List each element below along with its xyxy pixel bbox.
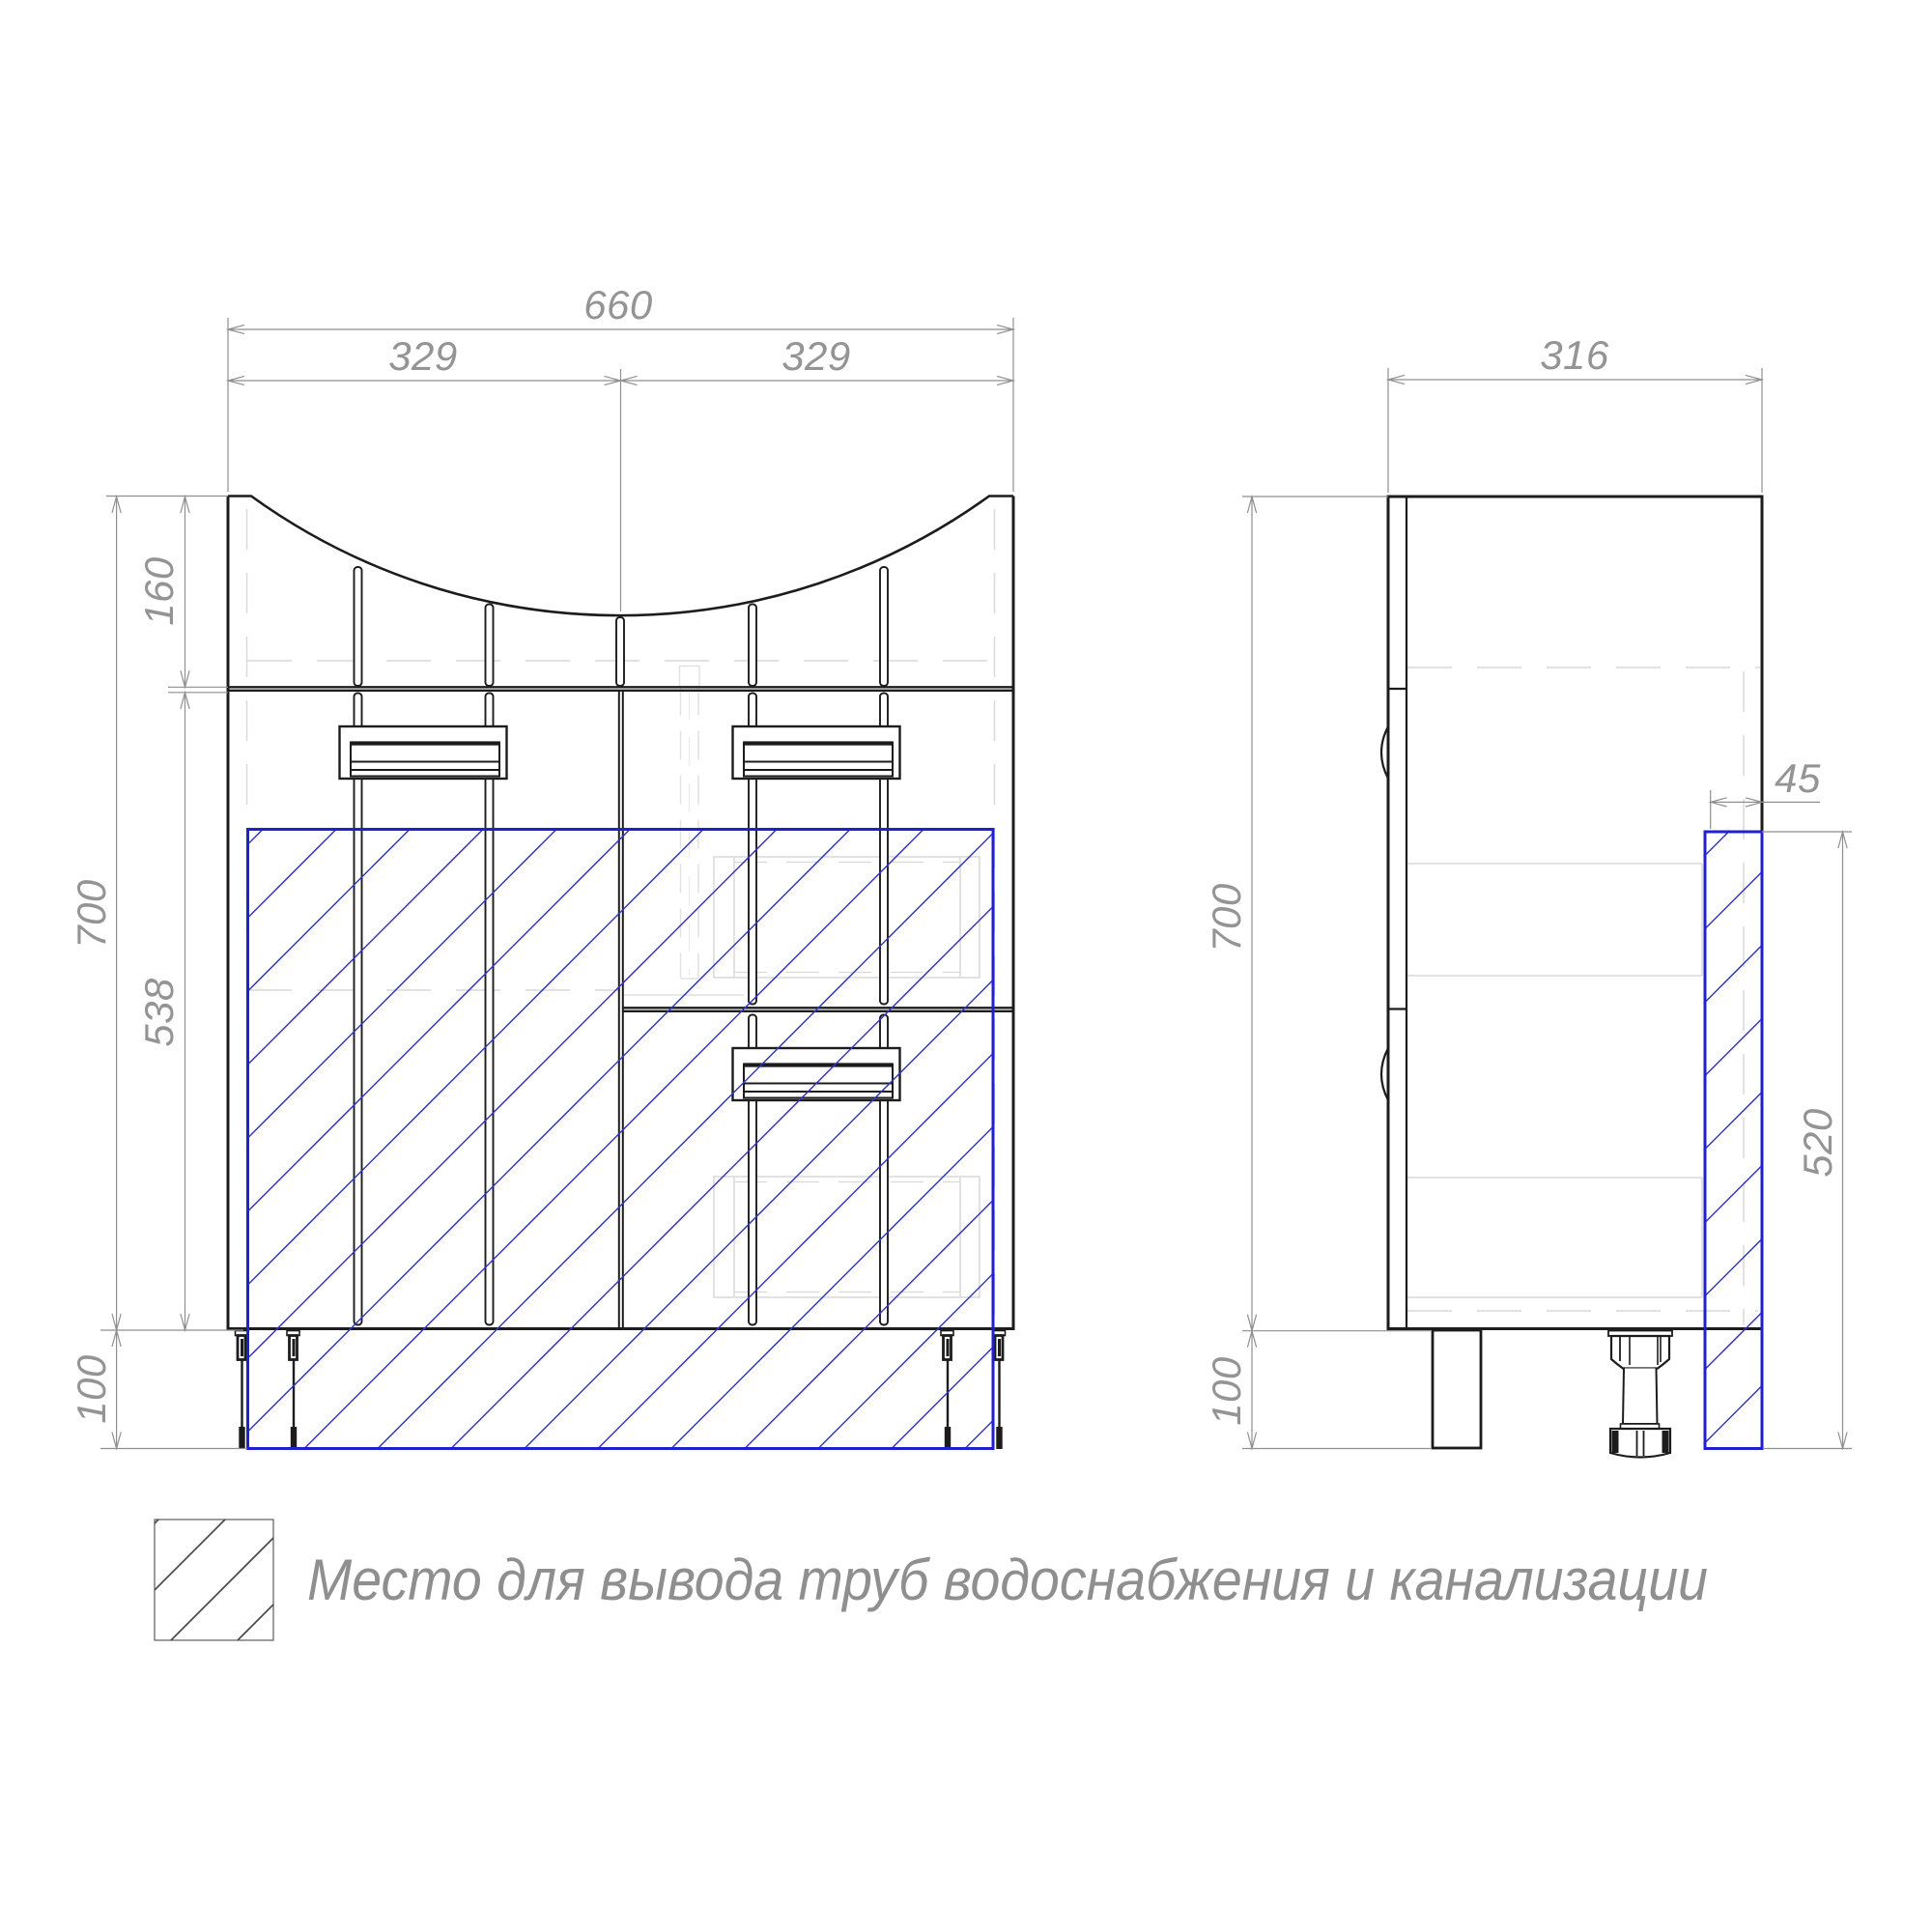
svg-text:329: 329: [388, 333, 458, 379]
svg-text:100: 100: [69, 1354, 114, 1424]
svg-text:700: 700: [1204, 883, 1249, 952]
svg-text:45: 45: [1775, 755, 1821, 801]
svg-text:329: 329: [781, 333, 851, 379]
svg-text:660: 660: [583, 282, 653, 327]
svg-text:520: 520: [1795, 1108, 1840, 1178]
svg-text:100: 100: [1204, 1356, 1249, 1426]
svg-text:700: 700: [69, 879, 114, 949]
svg-text:316: 316: [1540, 332, 1609, 378]
svg-text:538: 538: [136, 978, 182, 1047]
svg-text:Место для вывода труб водоснаб: Место для вывода труб водоснабжения и ка…: [307, 1548, 1708, 1612]
svg-text:160: 160: [136, 556, 182, 626]
